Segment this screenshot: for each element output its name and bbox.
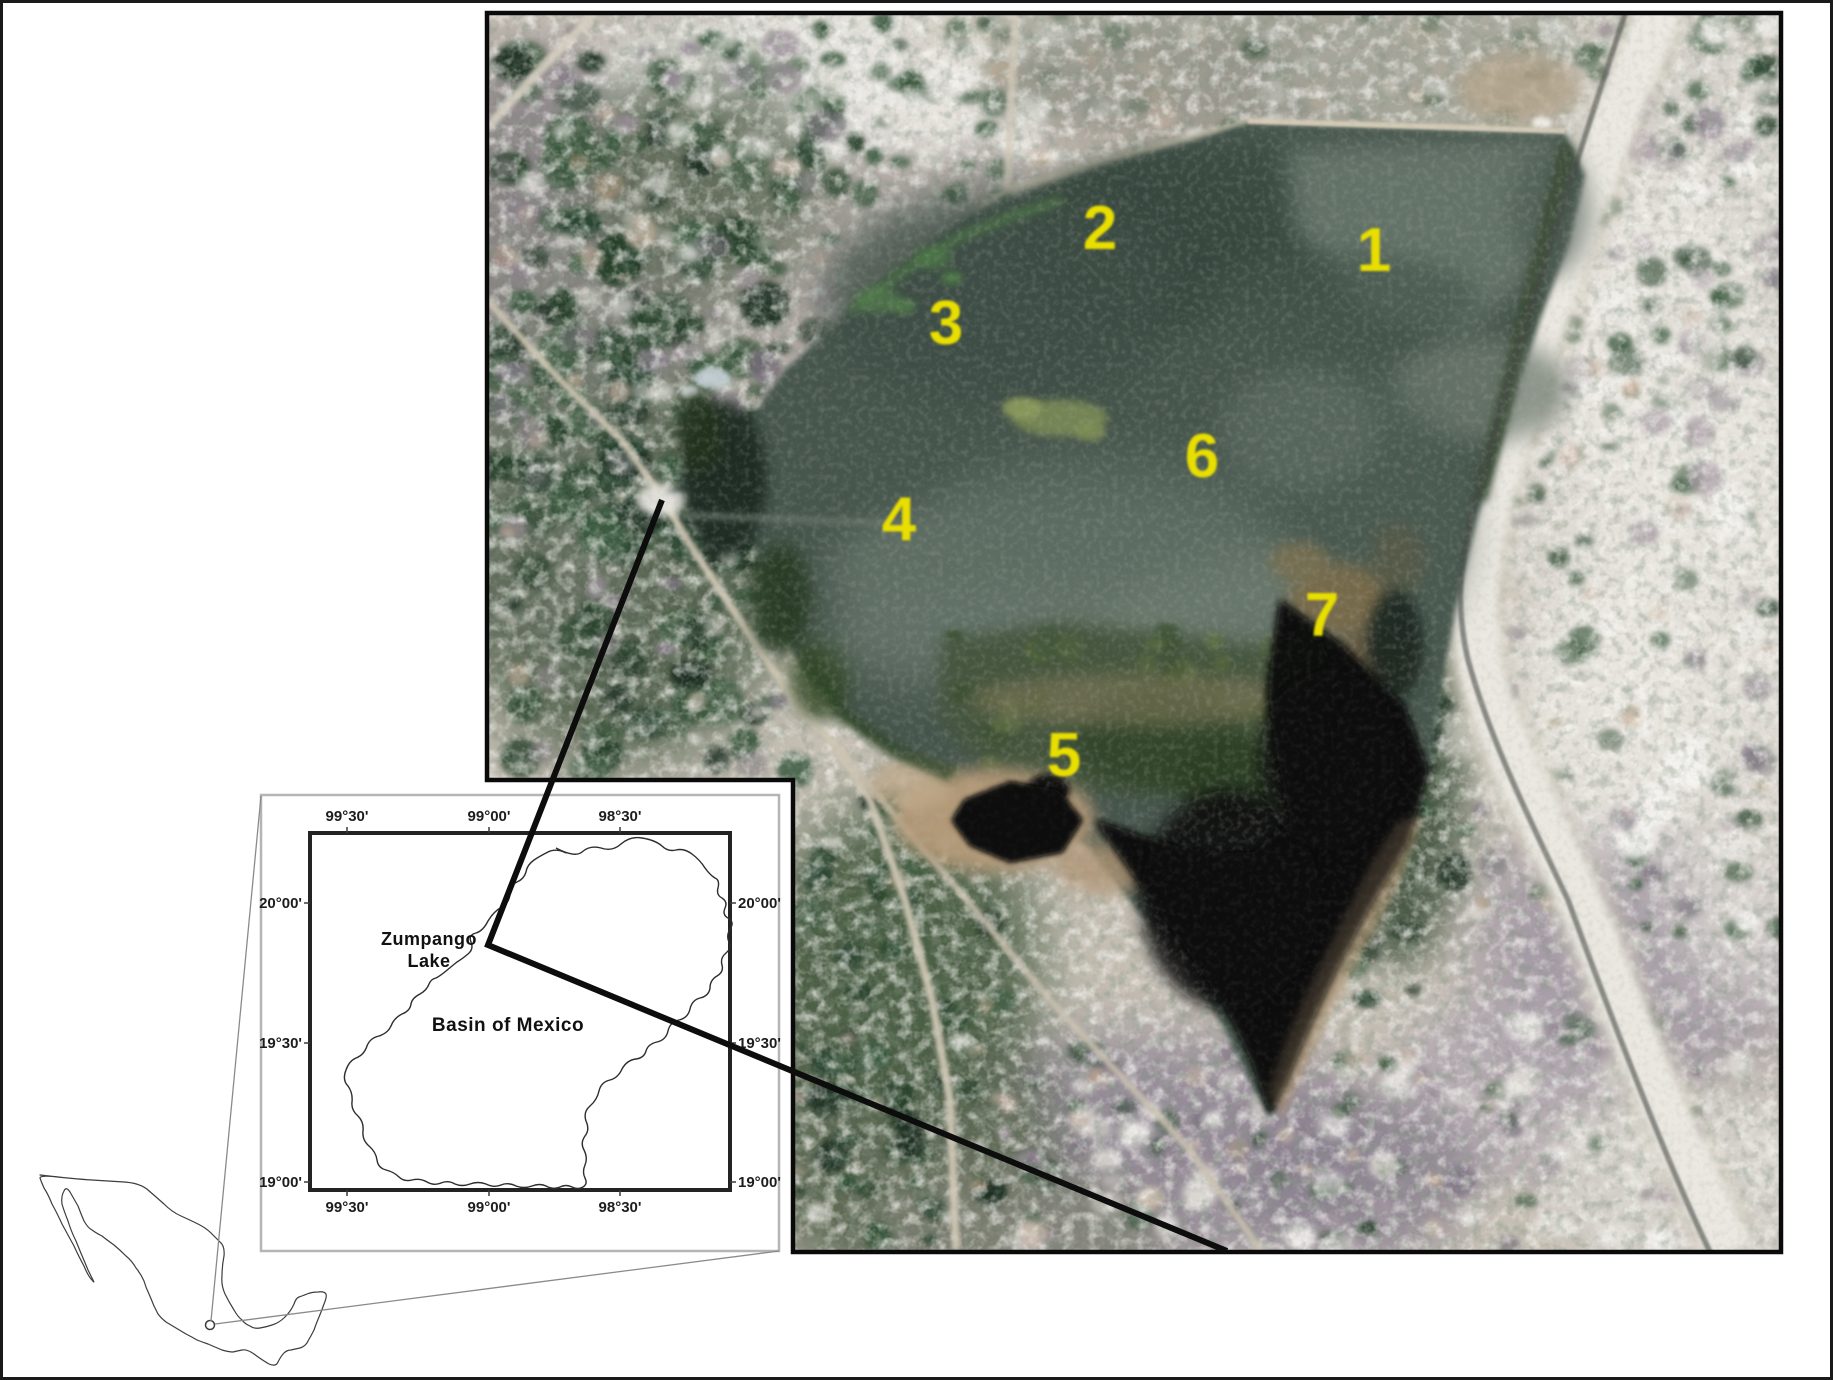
svg-text:19°30': 19°30' <box>259 1035 302 1052</box>
svg-text:4: 4 <box>882 485 917 554</box>
svg-text:19°00': 19°00' <box>259 1174 302 1191</box>
svg-text:99°00': 99°00' <box>468 1199 511 1216</box>
svg-text:20°00': 20°00' <box>259 895 302 912</box>
svg-text:2: 2 <box>1083 194 1117 263</box>
svg-text:6: 6 <box>1185 422 1219 491</box>
svg-text:7: 7 <box>1305 581 1339 650</box>
svg-text:20°00': 20°00' <box>738 895 781 912</box>
svg-text:19°00': 19°00' <box>738 1174 781 1191</box>
svg-text:Zumpango: Zumpango <box>381 929 477 949</box>
svg-text:99°30': 99°30' <box>326 808 369 825</box>
svg-text:98°30': 98°30' <box>599 1199 642 1216</box>
svg-text:3: 3 <box>929 289 963 358</box>
svg-text:99°00': 99°00' <box>468 808 511 825</box>
svg-text:1: 1 <box>1357 216 1391 285</box>
svg-text:Basin of Mexico: Basin of Mexico <box>432 1015 584 1036</box>
svg-text:99°30': 99°30' <box>326 1199 369 1216</box>
svg-text:98°30': 98°30' <box>599 808 642 825</box>
svg-text:5: 5 <box>1047 721 1081 790</box>
svg-text:Lake: Lake <box>407 951 450 971</box>
